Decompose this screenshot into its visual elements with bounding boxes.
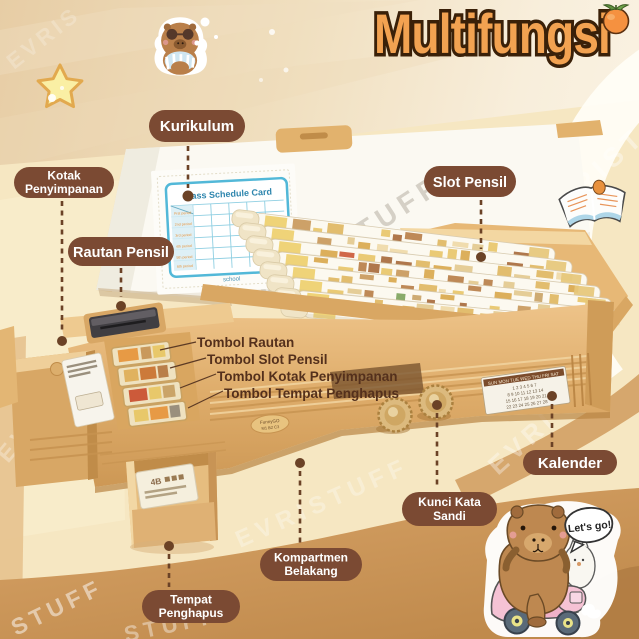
svg-text:Penghapus: Penghapus (159, 606, 224, 620)
svg-text:Belakang: Belakang (284, 564, 337, 578)
svg-text:6th period: 6th period (177, 264, 193, 269)
svg-text:Rautan Pensil: Rautan Pensil (73, 245, 169, 261)
svg-text:Tombol Tempat Penghapus: Tombol Tempat Penghapus (224, 386, 399, 401)
svg-text:Kalender: Kalender (538, 455, 602, 472)
svg-text:3rd period: 3rd period (175, 233, 191, 238)
svg-text:Sandi: Sandi (433, 509, 466, 523)
svg-text:Tempat: Tempat (170, 593, 212, 607)
svg-text:school: school (223, 276, 241, 283)
svg-text:Kompartmen: Kompartmen (274, 551, 348, 565)
svg-text:Penyimpanan: Penyimpanan (25, 182, 103, 196)
svg-text:Kurikulum: Kurikulum (160, 118, 234, 135)
svg-text:Tombol Rautan: Tombol Rautan (197, 335, 294, 350)
svg-text:Tombol Kotak Penyimpanan: Tombol Kotak Penyimpanan (217, 369, 398, 384)
svg-text:Tombol Slot Pensil: Tombol Slot Pensil (207, 352, 328, 367)
svg-text:Multifungsi: Multifungsi (374, 2, 610, 65)
svg-text:Kotak: Kotak (47, 169, 81, 183)
svg-text:5th period: 5th period (176, 255, 192, 260)
svg-text:4th period: 4th period (176, 244, 192, 249)
svg-text:Kunci Kata: Kunci Kata (418, 495, 481, 509)
svg-text:Slot Pensil: Slot Pensil (433, 175, 507, 191)
svg-text:4B: 4B (150, 476, 162, 488)
